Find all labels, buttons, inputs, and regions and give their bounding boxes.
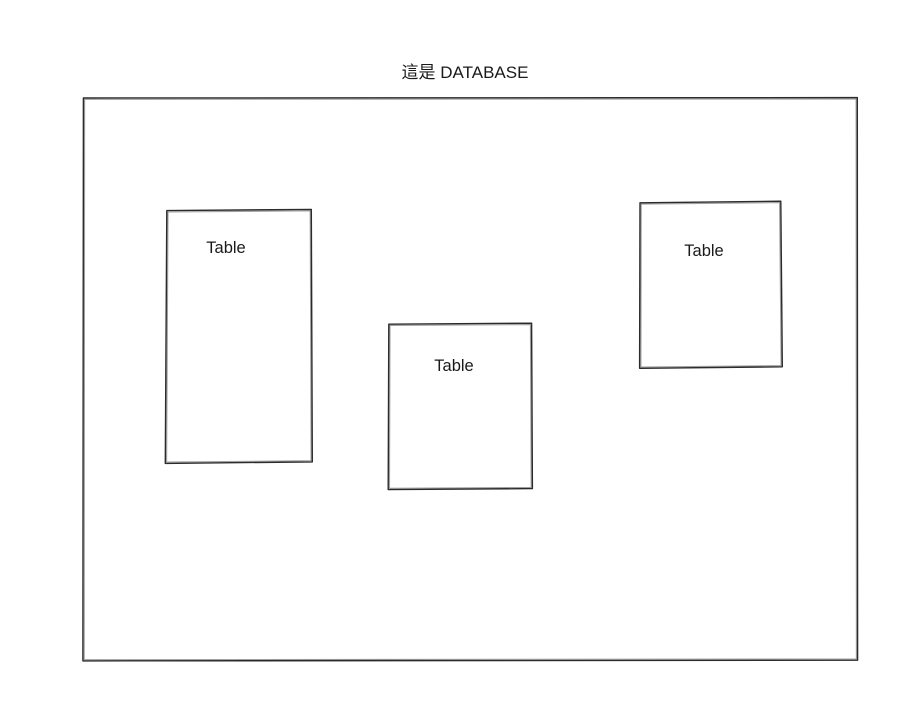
table-node-1-label: Table	[206, 239, 245, 257]
table-node-2-label: Table	[434, 357, 473, 375]
table-node-3	[640, 201, 783, 368]
table-node-2	[388, 323, 532, 489]
table-node-2-outline	[388, 323, 532, 489]
table-node-3-outline-sketch	[641, 203, 781, 367]
table-node-3-outline	[640, 201, 783, 368]
table-node-3-label: Table	[684, 242, 723, 260]
database-container-outline	[83, 98, 858, 661]
diagram-canvas: 這是 DATABASE Table Table Table	[0, 0, 916, 728]
database-container-box	[83, 98, 858, 661]
table-node-2-outline-sketch	[390, 325, 532, 489]
database-container-outline-sketch	[84, 99, 856, 660]
